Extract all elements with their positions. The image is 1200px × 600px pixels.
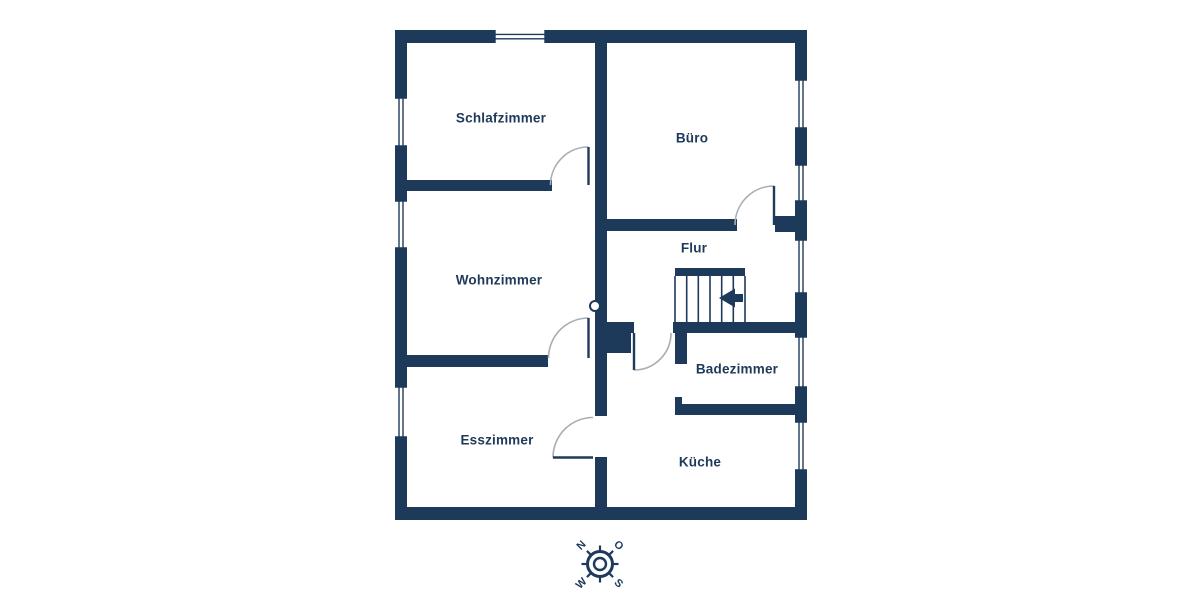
compass-letter-south: S	[612, 577, 626, 591]
window-left-esszimmer	[395, 387, 407, 437]
window-right-badezimmer	[795, 337, 807, 387]
wall-wohnzimmer-bottom	[407, 355, 548, 367]
window-top	[495, 30, 545, 43]
wall-buero-bottom	[607, 219, 737, 231]
wall-schlafzimmer-bottom	[407, 180, 552, 191]
floorplan-page: Schlafzimmer Büro Wohnzimmer Flur Badezi…	[0, 0, 1200, 600]
label-buero: Büro	[676, 131, 708, 146]
window-right-buero-1	[795, 80, 807, 128]
door-esszimmer	[553, 418, 593, 458]
wall-central-upper	[595, 43, 607, 416]
window-right-kueche	[795, 422, 807, 470]
wall-badezimmer-door-jamb	[675, 397, 682, 415]
label-schlafzimmer: Schlafzimmer	[456, 111, 547, 126]
window-right-flur	[795, 240, 807, 293]
wall-central-lower	[595, 457, 607, 507]
floorplan-canvas: Schlafzimmer Büro Wohnzimmer Flur Badezi…	[0, 0, 1200, 600]
wall-buero-door-jamb	[775, 216, 795, 232]
compass-rose: N O S W	[574, 538, 626, 591]
wall-exterior-bottom	[395, 507, 807, 520]
door-wohnzimmer	[549, 318, 589, 358]
wall-flur-bottom-right	[673, 322, 795, 333]
wall-badezimmer-left	[675, 328, 687, 364]
door-flur-kueche	[634, 333, 671, 370]
wall-pivot-circle	[590, 301, 600, 311]
door-schlafzimmer	[551, 147, 589, 185]
wall-exterior-top	[395, 30, 807, 43]
staircase	[675, 268, 745, 322]
compass-letter-east: O	[611, 538, 626, 553]
stairs-top-wall	[675, 268, 745, 276]
chimney-block	[607, 323, 631, 353]
label-flur: Flur	[681, 241, 708, 256]
label-wohnzimmer: Wohnzimmer	[456, 273, 543, 288]
wall-badezimmer-bottom	[675, 404, 795, 415]
label-badezimmer: Badezimmer	[696, 362, 779, 377]
window-left-wohnzimmer	[395, 201, 407, 248]
stairs-direction-arrow	[719, 289, 743, 308]
door-buero	[735, 186, 774, 225]
window-right-buero-2	[795, 165, 807, 201]
room-labels: Schlafzimmer Büro Wohnzimmer Flur Badezi…	[456, 111, 779, 470]
compass-inner-circle	[594, 558, 606, 570]
label-esszimmer: Esszimmer	[460, 433, 534, 448]
window-left-schlafzimmer	[395, 98, 407, 146]
compass-letter-north: N	[575, 539, 589, 553]
label-kueche: Küche	[679, 455, 722, 470]
